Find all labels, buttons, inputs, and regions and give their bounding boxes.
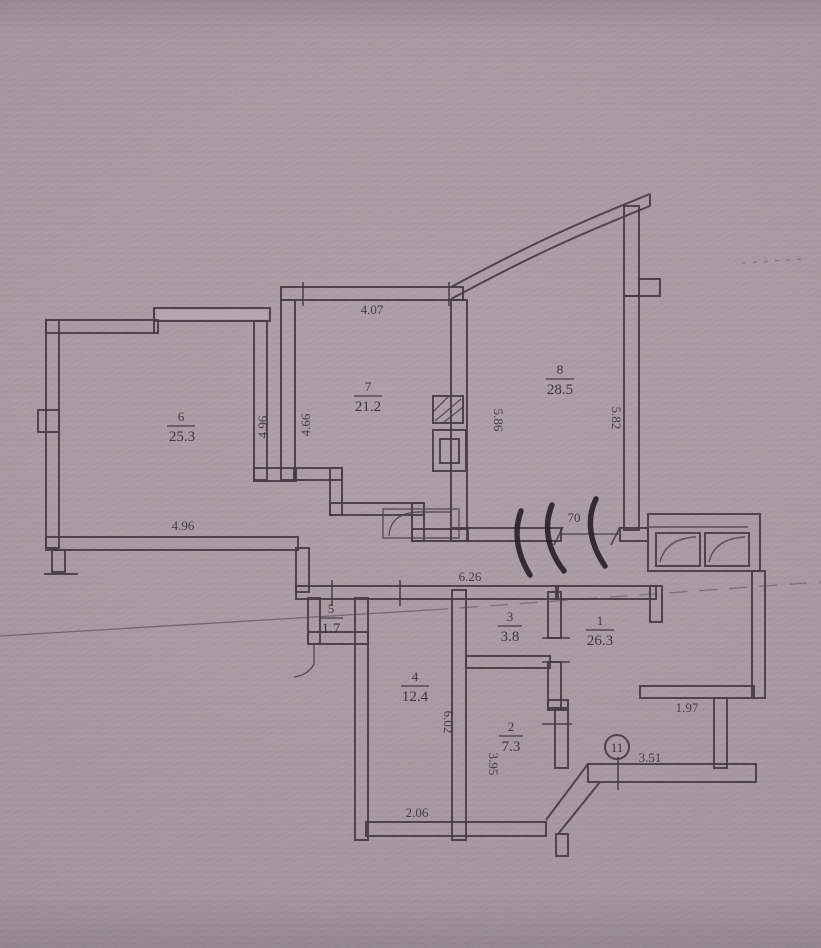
scanned-floor-plan: 11 1 26.3 2 7.3 3 3.8 4 12.4 5 1.7	[0, 0, 821, 948]
floor-plan-drawing: 11 1 26.3 2 7.3 3 3.8 4 12.4 5 1.7	[0, 0, 821, 948]
scan-grain-overlay	[0, 0, 821, 948]
